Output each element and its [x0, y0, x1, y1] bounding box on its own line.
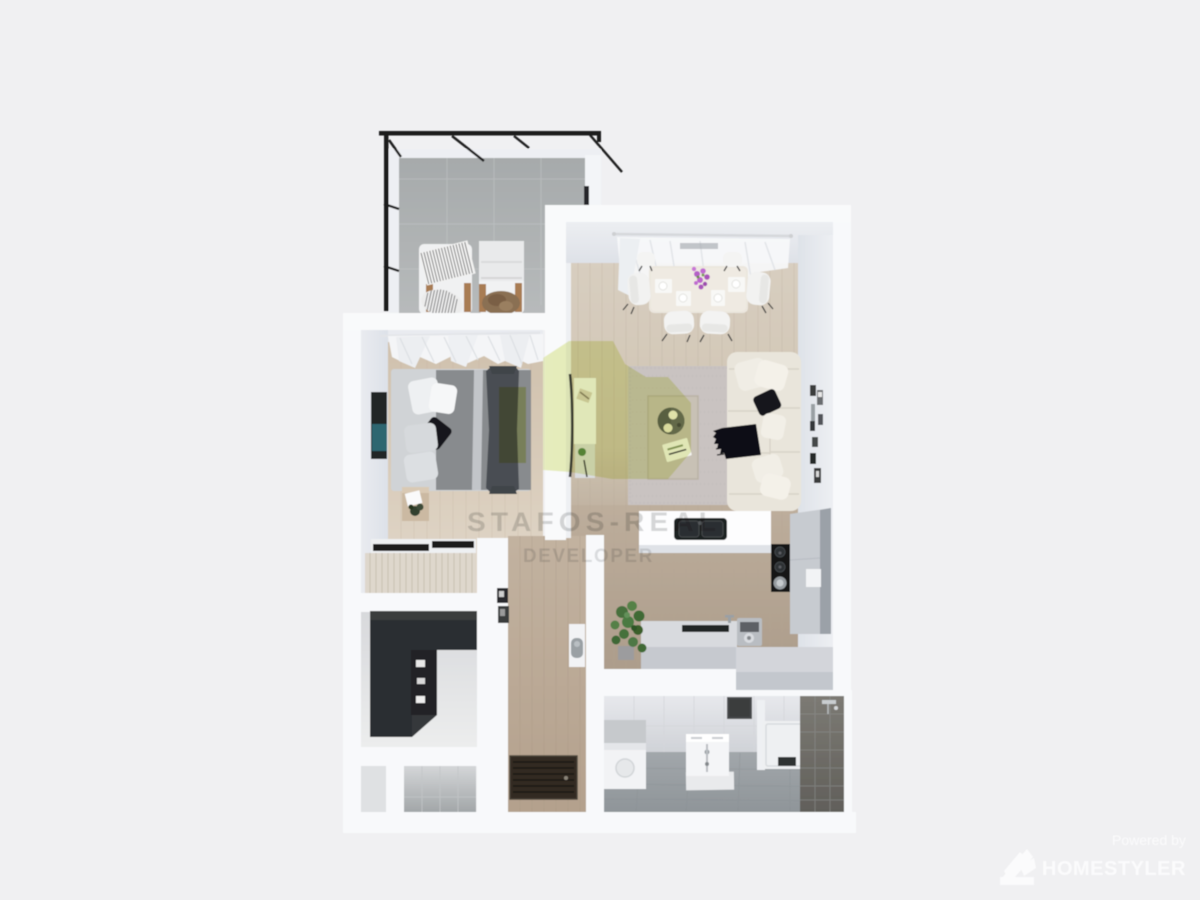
- svg-text:STAFOS-REAL: STAFOS-REAL: [467, 507, 721, 537]
- svg-text:DEVELOPER: DEVELOPER: [523, 546, 654, 567]
- svg-text:Powered by: Powered by: [1112, 832, 1186, 848]
- svg-text:HOMESTYLER: HOMESTYLER: [1042, 858, 1186, 880]
